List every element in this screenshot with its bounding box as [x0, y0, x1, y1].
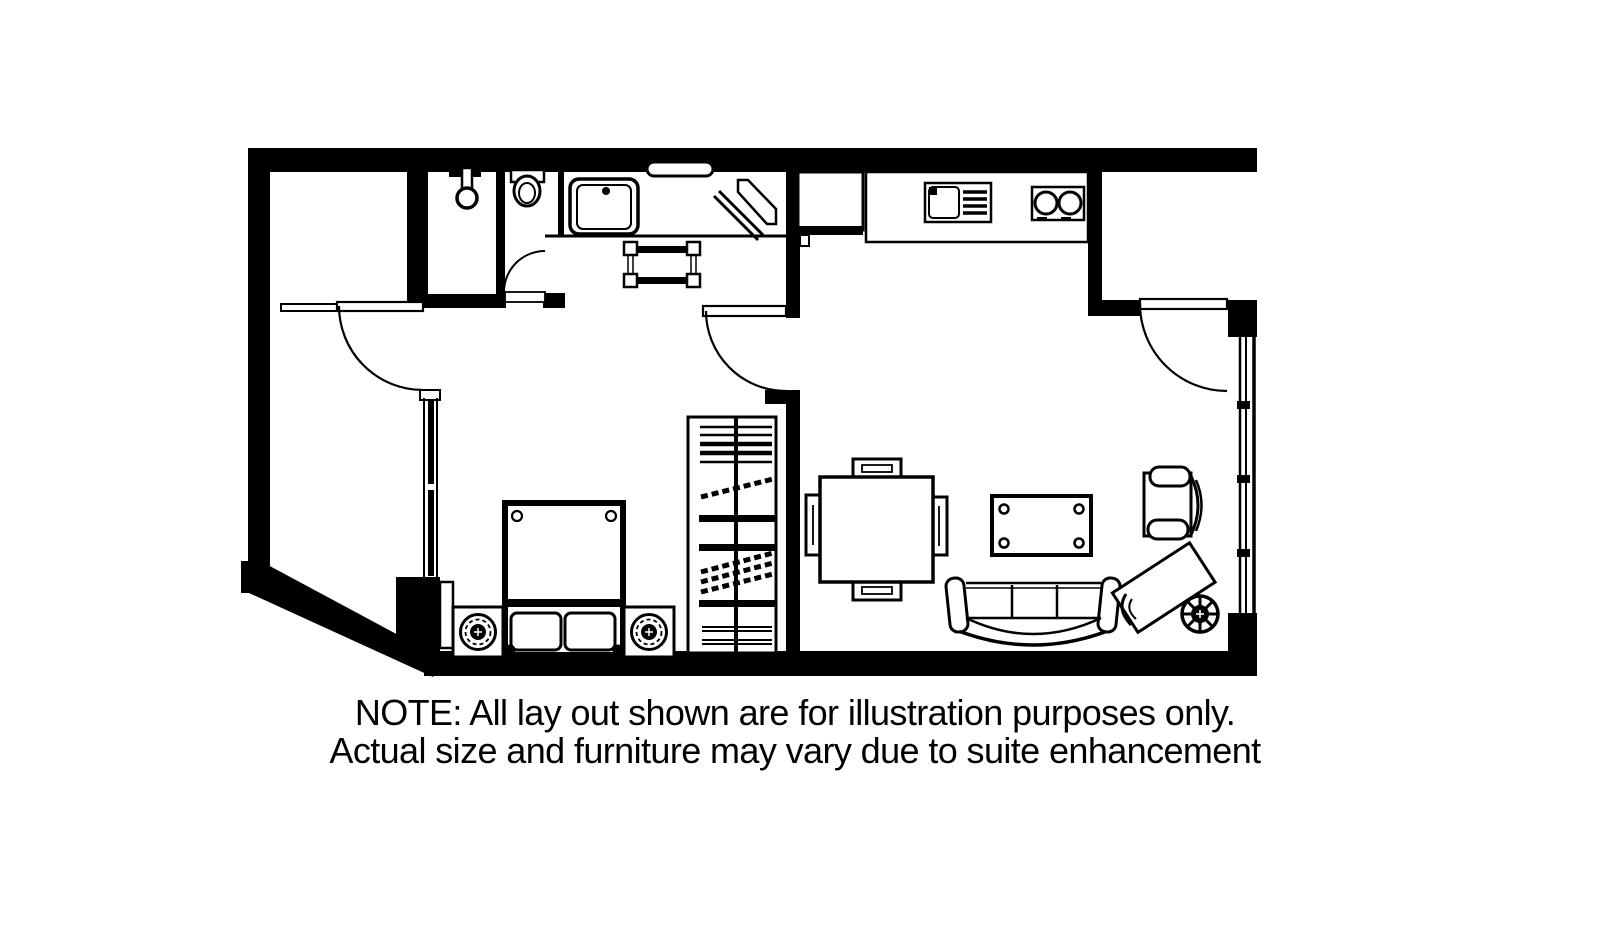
bench-post: [624, 242, 637, 255]
closet-shelf-bar: [699, 600, 775, 607]
window-mullion: [1237, 549, 1250, 557]
bench-rail: [632, 277, 692, 284]
table-bolt: [1075, 539, 1084, 548]
dining-set: [806, 459, 947, 600]
potted-plant: [1182, 596, 1218, 632]
door-header-stub: [281, 304, 337, 311]
kitchen-sink: [925, 183, 991, 222]
door-leaf: [1140, 299, 1227, 309]
sofa: [945, 577, 1121, 645]
fridge-body: [798, 172, 863, 230]
door-swing-arc: [706, 311, 786, 391]
refrigerator: [798, 172, 863, 246]
top-wall: [248, 148, 1257, 172]
sofa-back-inner: [966, 618, 1101, 634]
closet-room-wall: [407, 170, 428, 305]
bedroom-window: [420, 390, 440, 578]
bench-rail: [632, 246, 692, 253]
note-line-2: Actual size and furniture may vary due t…: [0, 732, 1590, 770]
cooktop-knob: [1037, 217, 1047, 221]
fridge-handle: [800, 235, 809, 246]
coffee-table: [992, 496, 1091, 555]
sofa-arm: [1097, 577, 1121, 633]
bed-corner-knob: [606, 511, 616, 521]
note-text: NOTE: All lay out shown are for illustra…: [0, 694, 1590, 770]
closet: [688, 417, 776, 653]
pillow: [565, 613, 615, 650]
bedroom: [453, 417, 776, 657]
toilet-bowl: [514, 176, 540, 206]
window-mullion: [1237, 401, 1250, 409]
door-leaf: [337, 302, 423, 311]
dining-table: [820, 477, 933, 582]
dining-chair: [853, 581, 901, 600]
sofa-back-outer: [951, 628, 1115, 645]
floor-plan-page: NOTE: All lay out shown are for illustra…: [0, 0, 1604, 936]
bedroom-inner-door: [703, 306, 786, 391]
bed-foot-knob: [613, 645, 624, 656]
blanket-fold: [508, 599, 620, 607]
kitchen-right-wall: [1088, 170, 1102, 303]
door-swing-arc: [339, 306, 423, 390]
shower-mount: [449, 167, 462, 177]
living-dining: [806, 459, 1218, 645]
bench-post: [624, 274, 637, 287]
shower-partition: [496, 170, 505, 295]
faucet: [602, 187, 610, 195]
toilet-vanity-partition: [558, 170, 564, 237]
window-glass-band: [428, 400, 434, 484]
table-bolt: [1075, 505, 1084, 514]
living-room-window-wall: [1237, 337, 1254, 615]
bench-post: [687, 274, 700, 287]
nightstand-right: [624, 607, 674, 657]
ironing-item: [714, 180, 776, 240]
door-stop-block: [765, 390, 800, 404]
towel-shelf: [647, 162, 713, 176]
kitchen: [798, 172, 1088, 246]
bedroom-living-wall: [786, 390, 800, 652]
table-bolt: [1000, 505, 1009, 514]
double-bed: [505, 503, 624, 656]
closet-shelf-bar: [699, 544, 775, 551]
door-threshold: [505, 292, 545, 302]
dining-chair: [853, 459, 901, 478]
door-swing-arc: [504, 251, 545, 292]
floor-plan-drawing: [0, 0, 1604, 936]
door-leaf: [703, 306, 786, 316]
bed-foot-knob: [505, 645, 516, 656]
right-wall-bottom-block: [1228, 613, 1257, 655]
cooktop-knob: [1061, 217, 1071, 221]
bath-door-jamb: [543, 293, 565, 308]
sink-corner-notch: [929, 187, 937, 195]
shower-head: [449, 167, 481, 208]
luggage-bench: [624, 242, 700, 287]
bedroom-door: [281, 302, 423, 390]
armchair-arm: [1150, 467, 1190, 486]
window-mullion: [1237, 475, 1250, 483]
right-wall-top-block: [1228, 300, 1257, 337]
note-line-1: NOTE: All lay out shown are for illustra…: [0, 694, 1590, 732]
sink-outer: [570, 179, 638, 234]
bench-post: [687, 242, 700, 255]
armchair-arm: [1148, 520, 1188, 539]
toilet: [511, 170, 544, 206]
fridge-front: [798, 226, 863, 235]
armchair: [1144, 467, 1202, 539]
left-wall: [248, 148, 270, 572]
sofa-arm: [945, 577, 969, 633]
cooktop: [1032, 187, 1084, 221]
nightstand-left: [453, 607, 503, 657]
door-swing-arc: [1140, 304, 1227, 391]
bathroom-door: [504, 251, 545, 302]
closet-shelf-bar: [699, 515, 775, 522]
window-glass-band: [428, 490, 434, 576]
vanity-sink: [570, 179, 638, 234]
pillow: [511, 613, 561, 650]
entry-wall-segment: [1088, 300, 1140, 316]
bed-corner-knob: [512, 511, 522, 521]
entry-door: [1140, 299, 1227, 391]
table-bolt: [1000, 539, 1009, 548]
structural-column: [396, 577, 453, 651]
column-block: [396, 577, 440, 651]
shower-rose: [457, 188, 477, 208]
column-side-panel: [440, 582, 453, 648]
